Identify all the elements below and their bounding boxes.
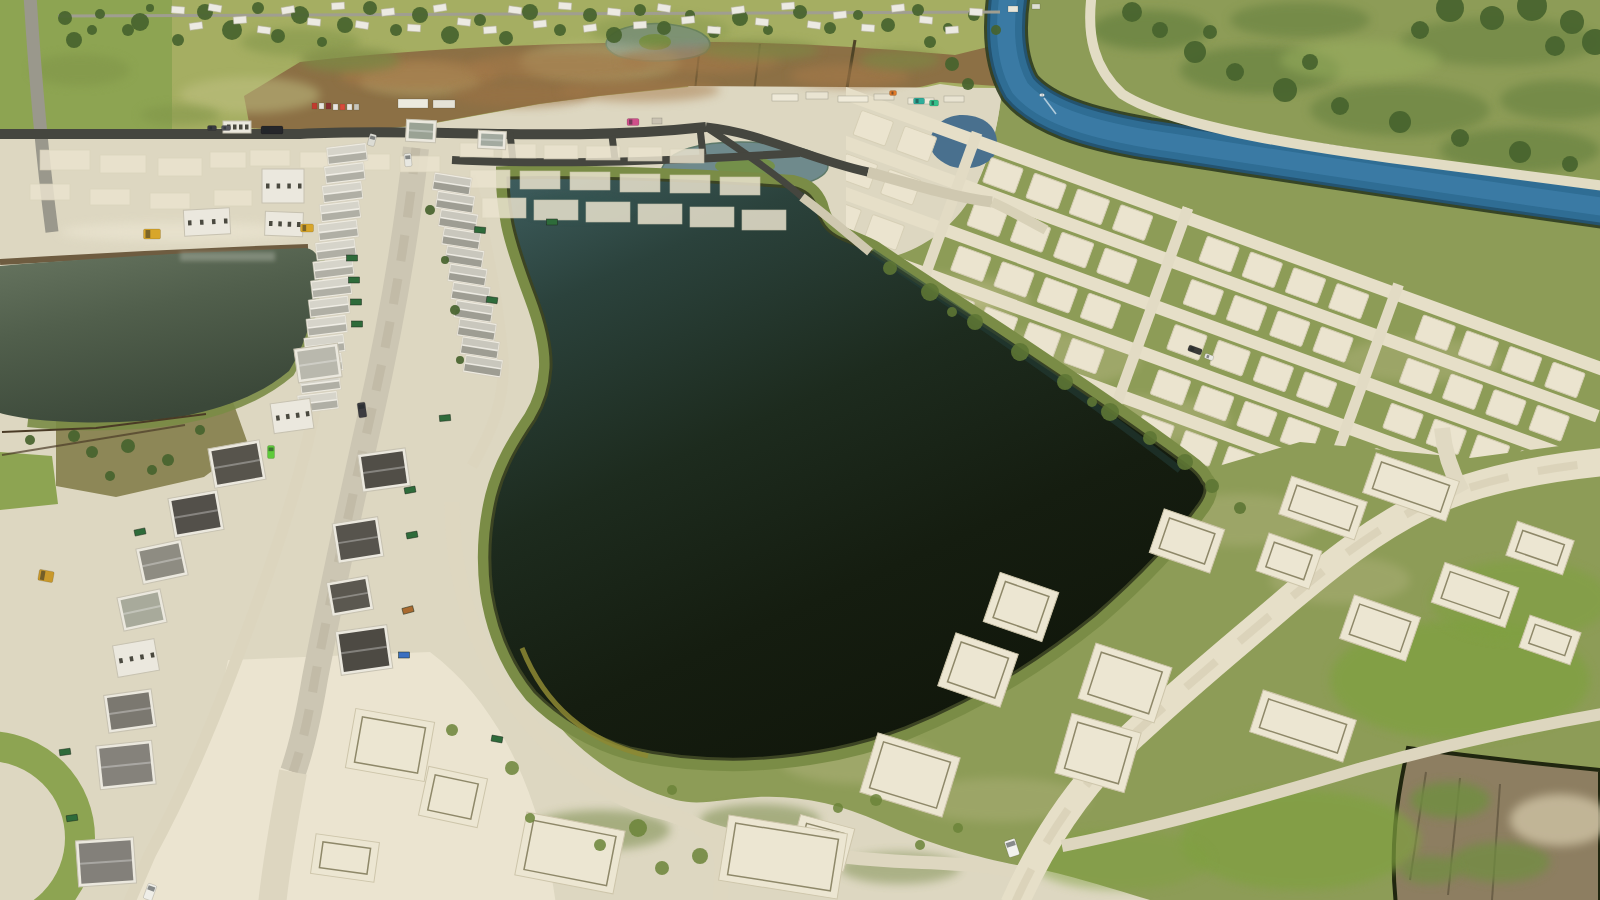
neighborhood-house xyxy=(257,26,271,35)
graded-lot xyxy=(544,145,578,159)
staging-unit xyxy=(772,94,798,101)
window-opening xyxy=(277,184,281,189)
house xyxy=(326,576,373,617)
shore-bush xyxy=(1177,454,1193,470)
mottle-patch xyxy=(700,40,820,60)
house xyxy=(358,448,411,492)
graded-lot xyxy=(742,210,786,230)
tree xyxy=(1545,36,1565,56)
graded-lot xyxy=(210,152,246,168)
windshield xyxy=(916,99,919,103)
mottle-patch xyxy=(30,54,130,86)
window-opening xyxy=(233,125,237,130)
neighborhood-house xyxy=(508,6,522,15)
weed-clump xyxy=(655,861,669,875)
shore-bush xyxy=(921,283,939,301)
mottle-patch xyxy=(300,48,400,72)
staging-unit xyxy=(312,103,317,109)
graded-lot xyxy=(670,175,710,193)
house xyxy=(113,639,160,678)
graded-lot xyxy=(690,207,734,227)
weed-clump xyxy=(833,803,843,813)
windshield xyxy=(263,127,269,133)
tree xyxy=(1184,41,1206,63)
house xyxy=(270,398,314,433)
house xyxy=(478,130,507,149)
weed-clump xyxy=(594,839,606,851)
graded-lot xyxy=(250,150,290,166)
weed-clump xyxy=(870,794,882,806)
graded-lot xyxy=(482,198,526,218)
dumpster xyxy=(486,296,498,303)
dumpster xyxy=(347,255,358,261)
tree xyxy=(991,25,1001,35)
vehicle xyxy=(144,229,161,239)
vehicle xyxy=(222,126,231,131)
graded-lot xyxy=(638,204,682,224)
vehicle xyxy=(208,126,217,131)
staging-unit xyxy=(433,100,455,108)
dumpster xyxy=(474,227,485,234)
window-opening xyxy=(239,125,243,130)
house xyxy=(262,169,304,203)
staging-unit xyxy=(1032,4,1040,9)
shore-bush xyxy=(1143,431,1157,445)
tree xyxy=(1509,141,1531,163)
graded-lot xyxy=(502,144,536,158)
tree xyxy=(1411,21,1429,39)
vehicle xyxy=(261,126,283,134)
dumpster xyxy=(399,652,410,658)
tree xyxy=(68,430,80,442)
dumpster xyxy=(66,814,78,821)
graded-lot xyxy=(30,184,70,200)
weed-clump xyxy=(692,848,708,864)
windshield xyxy=(405,155,410,159)
tree xyxy=(554,24,566,36)
tree xyxy=(363,1,377,15)
staging-unit xyxy=(838,96,868,102)
house xyxy=(168,490,224,538)
window-opening xyxy=(278,221,282,226)
tree xyxy=(147,465,157,475)
neighborhood-house xyxy=(171,6,185,14)
neighborhood-house xyxy=(381,8,395,17)
mottle-patch xyxy=(1410,782,1490,818)
staging-unit xyxy=(944,96,964,102)
tree xyxy=(441,26,459,44)
mottle-patch xyxy=(140,105,220,125)
staging-unit xyxy=(398,99,428,108)
tree xyxy=(1226,63,1244,81)
tree xyxy=(606,27,622,43)
windshield xyxy=(303,225,307,231)
neighborhood-house xyxy=(731,6,745,15)
dumpster xyxy=(349,277,360,283)
graded-lot xyxy=(628,147,662,161)
staging-unit xyxy=(347,104,352,110)
vehicle xyxy=(38,569,55,582)
window-opening xyxy=(245,125,249,130)
house xyxy=(294,343,342,383)
house xyxy=(335,625,393,676)
green-wedge xyxy=(0,452,58,510)
tree xyxy=(456,356,464,364)
neighborhood-house xyxy=(707,26,721,34)
pond-reflection xyxy=(180,252,275,261)
weed-clump xyxy=(525,813,535,823)
windshield xyxy=(146,230,151,238)
neighborhood-house xyxy=(807,21,821,30)
vehicle xyxy=(930,100,939,106)
neighborhood-house xyxy=(233,16,247,24)
windshield xyxy=(1042,95,1043,96)
mottle-patch xyxy=(60,222,300,242)
tree xyxy=(25,435,35,445)
tree xyxy=(87,25,97,35)
tree xyxy=(945,57,959,71)
mottle-patch xyxy=(1230,2,1370,38)
windshield xyxy=(358,404,365,409)
tree xyxy=(412,7,428,23)
tree xyxy=(337,17,353,33)
windshield xyxy=(932,101,935,105)
neighborhood-house xyxy=(457,18,471,27)
foundation-pad xyxy=(311,834,380,883)
tree xyxy=(450,305,460,315)
shore-bush xyxy=(883,261,897,275)
weed-clump xyxy=(629,819,647,837)
tree xyxy=(793,5,807,19)
house xyxy=(405,119,436,143)
tree xyxy=(252,2,264,14)
staging-unit xyxy=(319,103,324,109)
graded-lot xyxy=(40,150,90,170)
windshield xyxy=(269,448,274,452)
tree xyxy=(271,29,285,43)
tree xyxy=(1122,2,1142,22)
tree xyxy=(146,4,154,12)
mottle-patch xyxy=(1450,842,1550,882)
tree xyxy=(1560,10,1584,34)
house xyxy=(208,440,266,488)
tree xyxy=(162,454,174,466)
weed-clump xyxy=(505,761,519,775)
windshield xyxy=(224,127,227,130)
tree xyxy=(1302,54,1318,70)
graded-lot xyxy=(214,190,252,206)
staging-unit xyxy=(806,92,828,99)
window-opening xyxy=(296,412,300,417)
window-opening xyxy=(306,411,310,416)
shore-bush xyxy=(1011,343,1029,361)
neighborhood-house xyxy=(583,24,597,33)
graded-lot xyxy=(670,149,704,163)
neighborhood-house xyxy=(407,24,420,32)
tree xyxy=(583,8,597,22)
graded-lot xyxy=(620,174,660,192)
graded-lot xyxy=(570,172,610,190)
graded-lot xyxy=(586,202,630,222)
neighborhood-house xyxy=(189,22,203,31)
staging-unit xyxy=(333,104,338,110)
tree xyxy=(499,31,513,45)
tree xyxy=(1389,111,1411,133)
weed-clump xyxy=(915,840,925,850)
neighborhood-house xyxy=(607,8,621,16)
windshield xyxy=(629,120,632,125)
graded-lot xyxy=(100,155,146,173)
tree xyxy=(66,32,82,48)
tree xyxy=(1152,22,1168,38)
tree xyxy=(824,22,836,34)
shore-bush xyxy=(947,307,957,317)
weed-clump xyxy=(667,785,677,795)
window-opening xyxy=(266,184,270,189)
shore-bush xyxy=(1234,502,1246,514)
window-opening xyxy=(286,414,290,419)
vehicle xyxy=(1040,94,1045,97)
house xyxy=(265,211,304,236)
dumpster xyxy=(352,321,363,327)
neighborhood-house xyxy=(331,2,344,10)
graded-lot xyxy=(90,189,130,205)
weed-clump xyxy=(953,823,963,833)
shore-bush xyxy=(1205,479,1219,493)
window-opening xyxy=(224,218,228,223)
window-opening xyxy=(276,415,280,420)
tree xyxy=(441,256,449,264)
neighborhood-house xyxy=(833,11,847,19)
shore-bush xyxy=(1101,403,1119,421)
tree xyxy=(172,34,184,46)
weed-clump xyxy=(446,724,458,736)
tree xyxy=(195,425,205,435)
graded-lot xyxy=(720,177,760,195)
tree xyxy=(657,21,671,35)
window-opening xyxy=(297,222,301,227)
dumpster xyxy=(351,299,362,305)
neighborhood-house xyxy=(307,18,321,26)
house xyxy=(104,689,157,733)
tree xyxy=(105,471,115,481)
neighborhood-house xyxy=(483,26,497,34)
house xyxy=(183,208,230,236)
mottle-patch xyxy=(470,52,650,80)
window-opening xyxy=(212,219,216,224)
neighborhood-house xyxy=(681,16,695,24)
staging-unit xyxy=(1008,6,1018,12)
tree xyxy=(1273,78,1297,102)
tree xyxy=(763,25,773,35)
mottle-patch xyxy=(560,78,720,102)
tree xyxy=(1480,6,1504,30)
tree xyxy=(425,205,435,215)
shore-bush xyxy=(967,314,983,330)
vehicle xyxy=(890,91,897,96)
tree xyxy=(317,37,327,47)
tree xyxy=(962,78,974,90)
aerial-photo-stage xyxy=(0,0,1600,900)
windshield xyxy=(210,127,213,130)
tree xyxy=(121,439,135,453)
shore-bush xyxy=(1087,397,1097,407)
tree xyxy=(474,14,486,26)
tree xyxy=(1451,129,1469,147)
graded-lot xyxy=(150,193,190,209)
mottle-patch xyxy=(860,50,940,70)
graded-lot xyxy=(520,171,560,189)
mottle-patch xyxy=(1400,856,1460,884)
vehicle xyxy=(914,98,925,104)
tree xyxy=(522,4,538,20)
tree xyxy=(912,4,924,16)
neighborhood-house xyxy=(558,2,572,10)
window-opening xyxy=(288,222,292,227)
staging-unit xyxy=(340,104,345,110)
windshield xyxy=(892,92,894,95)
tree xyxy=(924,36,936,48)
graded-lot xyxy=(470,170,510,188)
staging-unit xyxy=(326,103,331,109)
tree xyxy=(95,9,105,19)
neighborhood-house xyxy=(891,4,905,13)
tree xyxy=(853,10,863,20)
vehicle xyxy=(357,402,367,418)
neighborhood-house xyxy=(945,26,959,34)
dumpster xyxy=(59,748,71,755)
shore-bush xyxy=(1057,374,1073,390)
neighborhood-house xyxy=(755,18,769,26)
tree xyxy=(122,24,134,36)
neighborhood-house xyxy=(533,20,547,28)
house xyxy=(75,837,136,887)
dumpster xyxy=(439,415,450,422)
tree xyxy=(634,4,646,16)
neighborhood-house xyxy=(781,2,795,10)
graded-lot xyxy=(158,158,202,176)
aerial-photo xyxy=(0,0,1600,900)
graded-lot xyxy=(534,200,578,220)
tree xyxy=(1331,97,1349,115)
window-opening xyxy=(188,220,192,225)
tree xyxy=(1562,156,1578,172)
house xyxy=(332,517,384,564)
staging-unit xyxy=(354,104,359,110)
dumpster xyxy=(547,219,558,225)
graded-lot xyxy=(586,146,620,160)
staging-unit xyxy=(652,118,662,124)
vehicle xyxy=(268,446,275,459)
tree xyxy=(1203,25,1217,39)
neighborhood-house xyxy=(633,21,646,29)
neighborhood-house xyxy=(919,16,933,24)
window-opening xyxy=(298,184,302,189)
tree xyxy=(86,446,98,458)
window-opening xyxy=(287,184,291,189)
neighborhood-house xyxy=(861,24,875,32)
tree xyxy=(58,11,72,25)
vehicle xyxy=(301,224,314,232)
window-opening xyxy=(269,221,273,226)
vehicle xyxy=(404,153,412,167)
vehicle xyxy=(627,119,639,126)
tree xyxy=(881,18,895,32)
window-opening xyxy=(200,220,204,225)
neighborhood-house xyxy=(969,8,982,16)
house xyxy=(96,740,156,790)
tree xyxy=(390,24,402,36)
